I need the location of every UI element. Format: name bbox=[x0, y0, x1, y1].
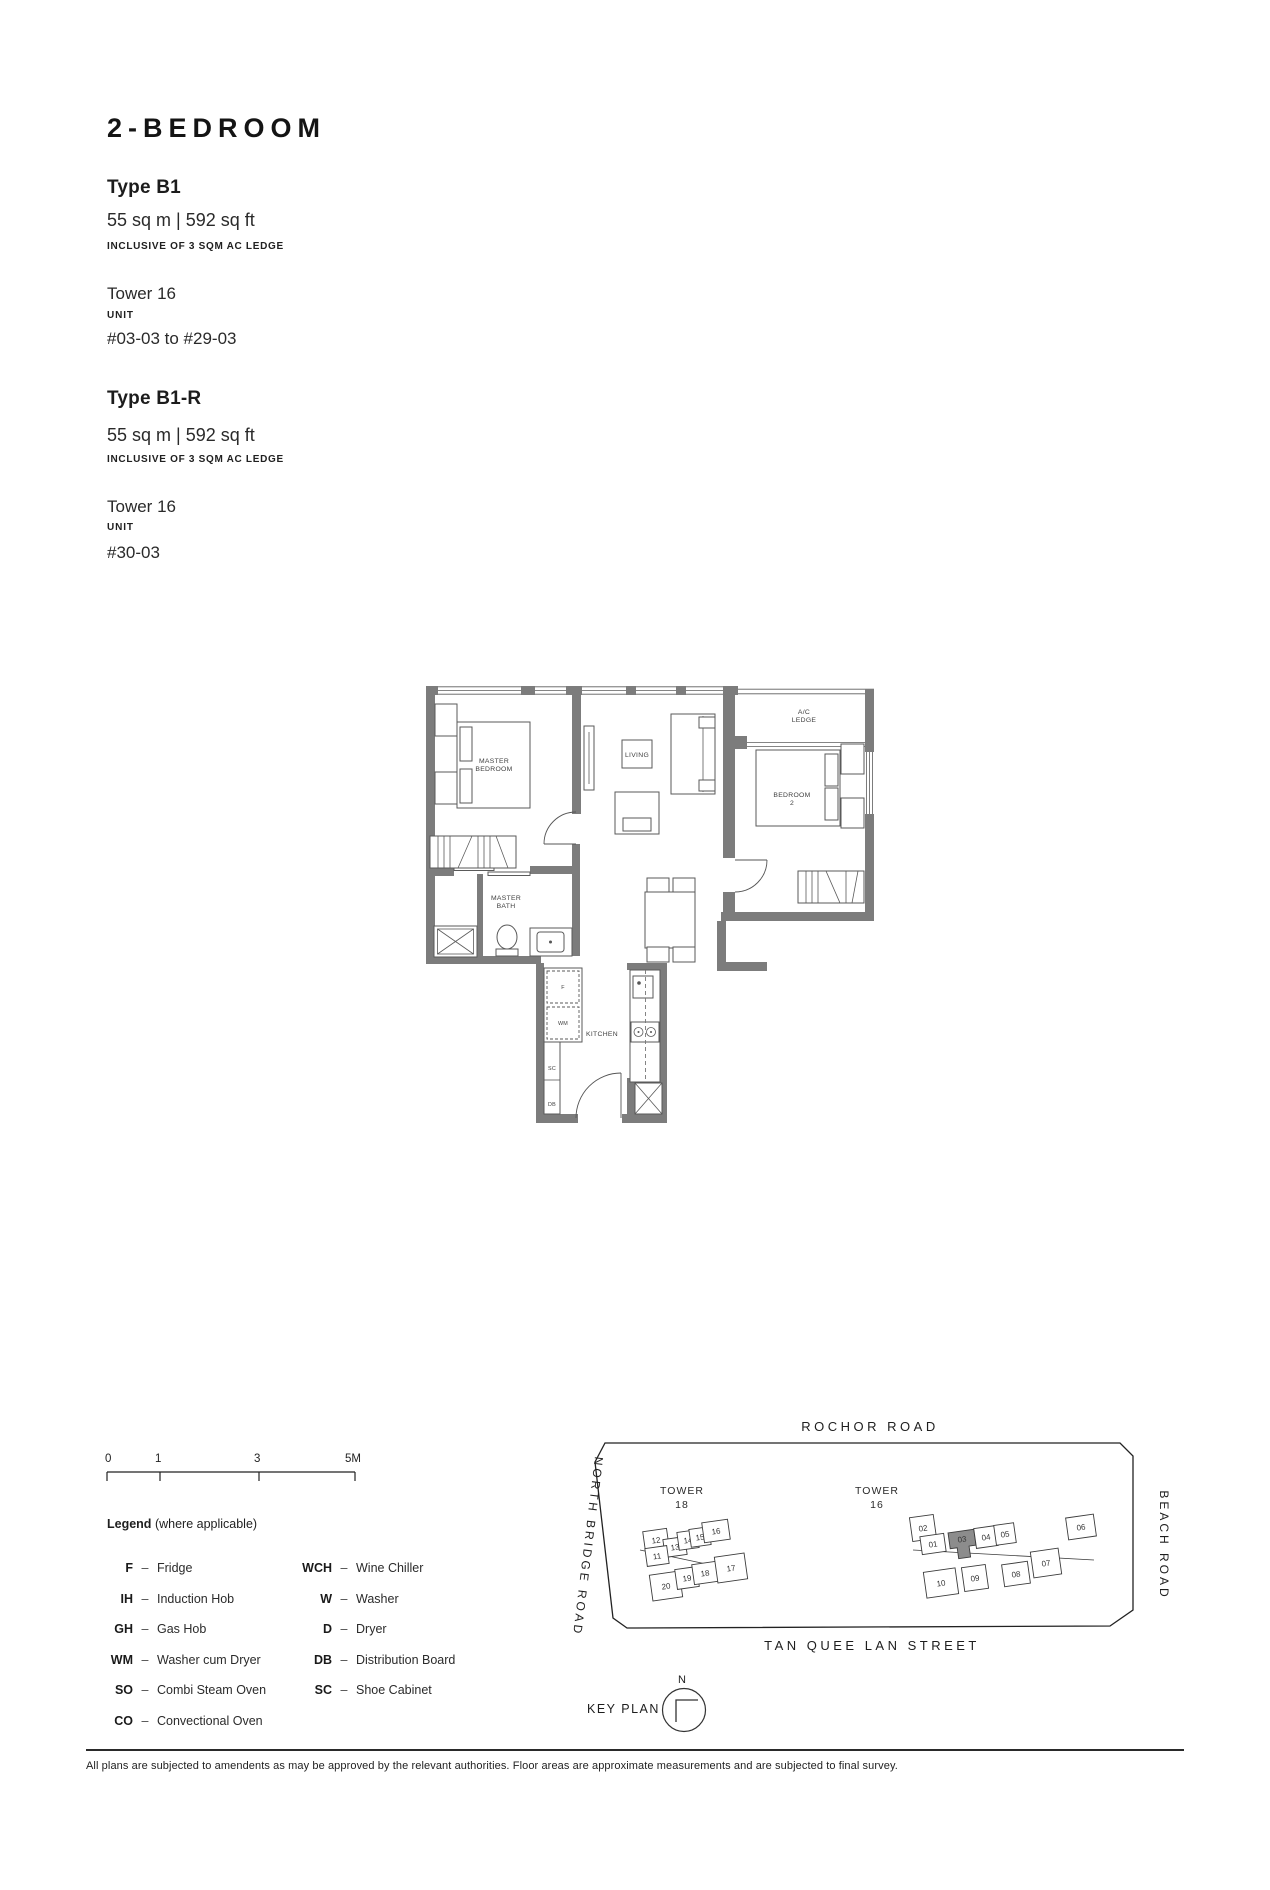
tower-16-cluster: 02 01 03 04 05 06 10 09 08 07 bbox=[909, 1514, 1096, 1598]
fridge-label: F bbox=[561, 985, 565, 991]
type-b1r-tower: Tower 16 bbox=[107, 497, 176, 517]
unit-02: 02 bbox=[918, 1523, 929, 1533]
north-arrow-icon bbox=[676, 1700, 698, 1722]
master-bath-fixtures bbox=[434, 925, 572, 957]
shower bbox=[434, 926, 477, 957]
legend-title: Legend (where applicable) bbox=[107, 1517, 587, 1531]
north-indicator: N bbox=[663, 1674, 706, 1732]
key-plan-label: KEY PLAN bbox=[587, 1702, 660, 1716]
legend-desc: Wine Chiller bbox=[356, 1562, 423, 1575]
legend-row: WM–Washer cum Dryer bbox=[107, 1654, 266, 1667]
nightstand bbox=[435, 772, 457, 804]
scale-bar: 0 1 3 5M bbox=[105, 1448, 365, 1488]
legend-desc: Induction Hob bbox=[157, 1593, 234, 1606]
master-bedroom-label: BEDROOM bbox=[475, 766, 512, 773]
nightstand bbox=[435, 704, 457, 736]
tower-18-label: TOWER bbox=[660, 1485, 704, 1497]
master-bath-label: MASTER bbox=[491, 895, 521, 902]
nightstand bbox=[841, 798, 864, 828]
unit-10: 10 bbox=[936, 1578, 947, 1588]
tower-16-label: TOWER bbox=[855, 1485, 899, 1497]
legend-abbr: W bbox=[298, 1593, 332, 1606]
legend-dash: – bbox=[133, 1654, 157, 1667]
entry-door bbox=[576, 1073, 621, 1118]
legend-dash: – bbox=[332, 1562, 356, 1575]
nightstand bbox=[841, 744, 864, 774]
type-b1-tower: Tower 16 bbox=[107, 284, 176, 304]
unit-19: 19 bbox=[682, 1573, 693, 1583]
ac-ledge-label: LEDGE bbox=[792, 717, 817, 724]
master-bedroom-label: MASTER bbox=[479, 758, 509, 765]
legend-dash: – bbox=[133, 1562, 157, 1575]
tower-16-number: 16 bbox=[870, 1499, 884, 1511]
unit-09: 09 bbox=[970, 1573, 981, 1583]
legend-abbr: F bbox=[107, 1562, 133, 1575]
type-b1r-unit-range: #30-03 bbox=[107, 543, 160, 563]
type-b1r-area: 55 sq m | 592 sq ft bbox=[107, 425, 255, 446]
dining-furniture bbox=[645, 878, 695, 962]
legend-dash: – bbox=[332, 1623, 356, 1636]
road-beach: BEACH ROAD bbox=[1157, 1490, 1171, 1599]
unit-08: 08 bbox=[1011, 1569, 1022, 1579]
scale-3: 3 bbox=[254, 1453, 260, 1465]
legend-row: F–Fridge bbox=[107, 1562, 266, 1575]
type-b1-unit-range: #03-03 to #29-03 bbox=[107, 329, 237, 349]
master-wardrobe bbox=[430, 836, 516, 868]
type-b1-unit-label: UNIT bbox=[107, 310, 134, 321]
master-bedroom-door bbox=[544, 812, 576, 844]
shoe-cabinet-label: SC bbox=[548, 1066, 556, 1072]
unit-12: 12 bbox=[651, 1535, 662, 1545]
legend-dash: – bbox=[133, 1623, 157, 1636]
legend-row: SC–Shoe Cabinet bbox=[298, 1684, 455, 1697]
bedroom2-wardrobe bbox=[798, 871, 864, 903]
legend-desc: Dryer bbox=[356, 1623, 387, 1636]
scale-5m: 5M bbox=[345, 1453, 361, 1465]
kitchen-label: KITCHEN bbox=[586, 1031, 618, 1038]
cooktop bbox=[631, 1022, 659, 1042]
legend-desc: Convectional Oven bbox=[157, 1715, 263, 1728]
legend-row: DB–Distribution Board bbox=[298, 1654, 455, 1667]
distribution-board-label: DB bbox=[548, 1102, 556, 1108]
bedroom2-label: 2 bbox=[790, 800, 794, 807]
unit-18: 18 bbox=[700, 1568, 711, 1578]
legend-abbr: WM bbox=[107, 1654, 133, 1667]
legend-dash: – bbox=[133, 1684, 157, 1697]
tower-18-number: 18 bbox=[675, 1499, 689, 1511]
unit-03-highlighted: 03 bbox=[948, 1529, 978, 1559]
legend-desc: Fridge bbox=[157, 1562, 192, 1575]
unit-06: 06 bbox=[1076, 1522, 1087, 1532]
floorplan-page: 2-BEDROOM Type B1 55 sq m | 592 sq ft IN… bbox=[0, 0, 1270, 1890]
armchair bbox=[615, 792, 659, 834]
sofa bbox=[671, 714, 715, 794]
legend-dash: – bbox=[133, 1593, 157, 1606]
legend-row: SO–Combi Steam Oven bbox=[107, 1684, 266, 1697]
bedroom2-door bbox=[735, 860, 767, 892]
type-b1-name: Type B1 bbox=[107, 177, 181, 199]
unit-17: 17 bbox=[726, 1563, 737, 1573]
north-circle bbox=[663, 1689, 706, 1732]
north-label: N bbox=[678, 1674, 686, 1686]
legend-row: IH–Induction Hob bbox=[107, 1593, 266, 1606]
footer-divider bbox=[86, 1749, 1184, 1751]
unit-05: 05 bbox=[1000, 1529, 1011, 1539]
unit-16: 16 bbox=[711, 1526, 722, 1536]
washer-dryer-label: WM bbox=[558, 1021, 568, 1027]
legend-desc: Washer cum Dryer bbox=[157, 1654, 261, 1667]
service-box bbox=[635, 1083, 662, 1114]
legend-dash: – bbox=[332, 1654, 356, 1667]
legend-row: D–Dryer bbox=[298, 1623, 455, 1636]
unit-04: 04 bbox=[981, 1532, 992, 1542]
living-furniture bbox=[584, 714, 715, 834]
toilet bbox=[496, 925, 518, 956]
dining-table bbox=[645, 892, 695, 948]
legend-abbr: D bbox=[298, 1623, 332, 1636]
legend-desc: Washer bbox=[356, 1593, 399, 1606]
road-tan-quee-lan: TAN QUEE LAN STREET bbox=[764, 1638, 980, 1653]
key-plan: ROCHOR ROAD NORTH BRIDGE ROAD BEACH ROAD… bbox=[560, 1405, 1220, 1745]
type-b1-area-note: INCLUSIVE OF 3 SQM AC LEDGE bbox=[107, 241, 284, 252]
legend-row: WCH–Wine Chiller bbox=[298, 1562, 455, 1575]
ac-ledge-label: A/C bbox=[798, 709, 810, 716]
legend-right-column: WCH–Wine Chiller W–Washer D–Dryer DB–Dis… bbox=[298, 1562, 455, 1697]
type-b1r-unit-label: UNIT bbox=[107, 522, 134, 533]
legend-abbr: CO bbox=[107, 1715, 133, 1728]
type-b1r-area-note: INCLUSIVE OF 3 SQM AC LEDGE bbox=[107, 454, 284, 465]
kitchen-sink bbox=[633, 976, 653, 998]
scale-0: 0 bbox=[105, 1453, 111, 1465]
legend-title-word: Legend bbox=[107, 1517, 151, 1531]
floor-plan: MASTER BEDROOM LIVING A/C LEDGE BEDROOM … bbox=[426, 686, 874, 1134]
living-label: LIVING bbox=[625, 752, 649, 759]
legend-row: GH–Gas Hob bbox=[107, 1623, 266, 1636]
unit-01: 01 bbox=[928, 1539, 939, 1549]
legend: Legend (where applicable) F–Fridge IH–In… bbox=[107, 1517, 587, 1747]
page-title: 2-BEDROOM bbox=[107, 113, 326, 144]
legend-desc: Combi Steam Oven bbox=[157, 1684, 266, 1697]
bedroom2-furniture bbox=[756, 744, 864, 903]
master-bath-label: BATH bbox=[497, 903, 516, 910]
legend-abbr: SO bbox=[107, 1684, 133, 1697]
kitchen-counter bbox=[630, 970, 660, 1082]
bedroom2-label: BEDROOM bbox=[773, 792, 810, 799]
type-b1r-name: Type B1-R bbox=[107, 388, 201, 410]
legend-abbr: WCH bbox=[298, 1562, 332, 1575]
legend-row: W–Washer bbox=[298, 1593, 455, 1606]
vanity-sink bbox=[530, 928, 572, 956]
legend-dash: – bbox=[332, 1684, 356, 1697]
unit-03: 03 bbox=[957, 1534, 968, 1544]
legend-desc: Shoe Cabinet bbox=[356, 1684, 432, 1697]
road-north-bridge: NORTH BRIDGE ROAD bbox=[570, 1456, 606, 1637]
road-rochor: ROCHOR ROAD bbox=[801, 1419, 938, 1434]
legend-abbr: IH bbox=[107, 1593, 133, 1606]
legend-row: CO–Convectional Oven bbox=[107, 1715, 266, 1728]
legend-desc: Distribution Board bbox=[356, 1654, 455, 1667]
tower-18-cluster: 12 13 14 15 16 11 20 19 18 17 bbox=[640, 1519, 748, 1601]
legend-dash: – bbox=[332, 1593, 356, 1606]
legend-abbr: DB bbox=[298, 1654, 332, 1667]
legend-abbr: GH bbox=[107, 1623, 133, 1636]
legend-desc: Gas Hob bbox=[157, 1623, 206, 1636]
site-boundary bbox=[595, 1443, 1133, 1628]
footer-disclaimer: All plans are subjected to amendents as … bbox=[86, 1760, 1206, 1772]
master-bedroom-furniture bbox=[430, 704, 530, 868]
legend-abbr: SC bbox=[298, 1684, 332, 1697]
legend-dash: – bbox=[133, 1715, 157, 1728]
unit-20: 20 bbox=[661, 1581, 672, 1591]
scale-1: 1 bbox=[155, 1453, 161, 1465]
unit-07: 07 bbox=[1041, 1558, 1052, 1568]
legend-left-column: F–Fridge IH–Induction Hob GH–Gas Hob WM–… bbox=[107, 1562, 266, 1727]
type-b1-area: 55 sq m | 592 sq ft bbox=[107, 210, 255, 231]
legend-title-note: (where applicable) bbox=[155, 1517, 257, 1531]
